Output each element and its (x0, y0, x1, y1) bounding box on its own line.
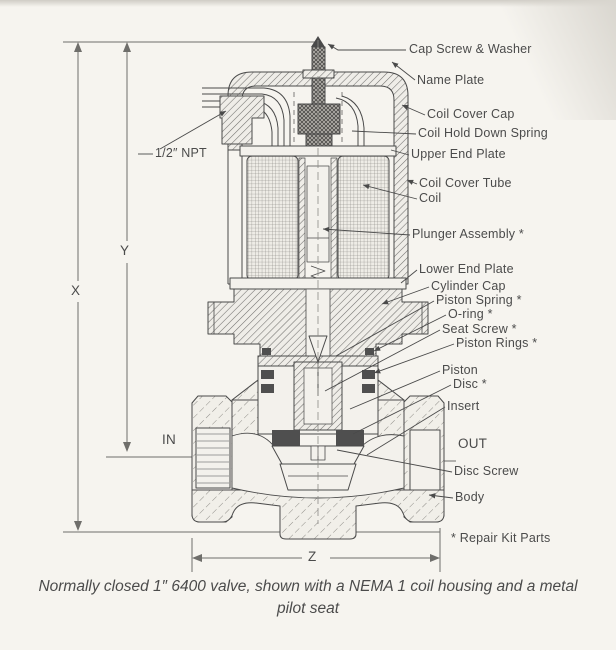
label-upper-end-plate: Upper End Plate (411, 147, 506, 161)
label-disc: Disc * (453, 377, 487, 391)
o-ring-right (365, 348, 374, 355)
label-coil: Coil (419, 191, 441, 205)
plug-nut-shape (298, 104, 340, 134)
dim-label-x: X (68, 283, 83, 298)
label-piston-rings: Piston Rings * (456, 336, 537, 350)
dim-label-y: Y (117, 243, 132, 258)
dim-label-conduit-npt: 1/2″ NPT (155, 146, 207, 160)
label-coil-cover-tube: Coil Cover Tube (419, 176, 512, 190)
label-name-plate: Name Plate (417, 73, 484, 87)
label-disc-screw: Disc Screw (454, 464, 519, 478)
label-lower-end-plate: Lower End Plate (419, 262, 514, 276)
label-o-ring: O-ring * (448, 307, 493, 321)
label-piston-spring: Piston Spring * (436, 293, 522, 307)
figure-caption: Normally closed 1″ 6400 valve, shown wit… (33, 576, 583, 621)
disc-shape (272, 430, 300, 446)
label-insert: Insert (447, 399, 479, 413)
label-coil-hold-down-spring: Coil Hold Down Spring (418, 126, 548, 140)
dim-label-z: Z (305, 549, 319, 564)
label-seat-screw: Seat Screw * (442, 322, 517, 336)
conduit-hub-shape (220, 96, 264, 144)
label-body: Body (455, 490, 484, 504)
outlet-bore (410, 430, 440, 490)
port-label-in: IN (159, 432, 179, 447)
label-cap-screw-washer: Cap Screw & Washer (409, 42, 532, 56)
cap-screw-shape (303, 36, 334, 106)
port-label-out: OUT (455, 436, 490, 451)
inlet-bore (196, 428, 230, 488)
coil-winding-right (338, 156, 389, 280)
label-cylinder-cap: Cylinder Cap (431, 279, 506, 293)
label-coil-cover-cap: Coil Cover Cap (427, 107, 515, 121)
piston-ring-shape (261, 370, 274, 379)
coil-winding-left (247, 156, 298, 280)
valve-diagram-page: Cap Screw & Washer Name Plate Coil Cover… (0, 0, 616, 650)
o-ring-left (262, 348, 271, 355)
label-plunger-assembly: Plunger Assembly * (412, 227, 524, 241)
label-piston: Piston (442, 363, 478, 377)
repair-kit-footnote: * Repair Kit Parts (451, 531, 550, 545)
